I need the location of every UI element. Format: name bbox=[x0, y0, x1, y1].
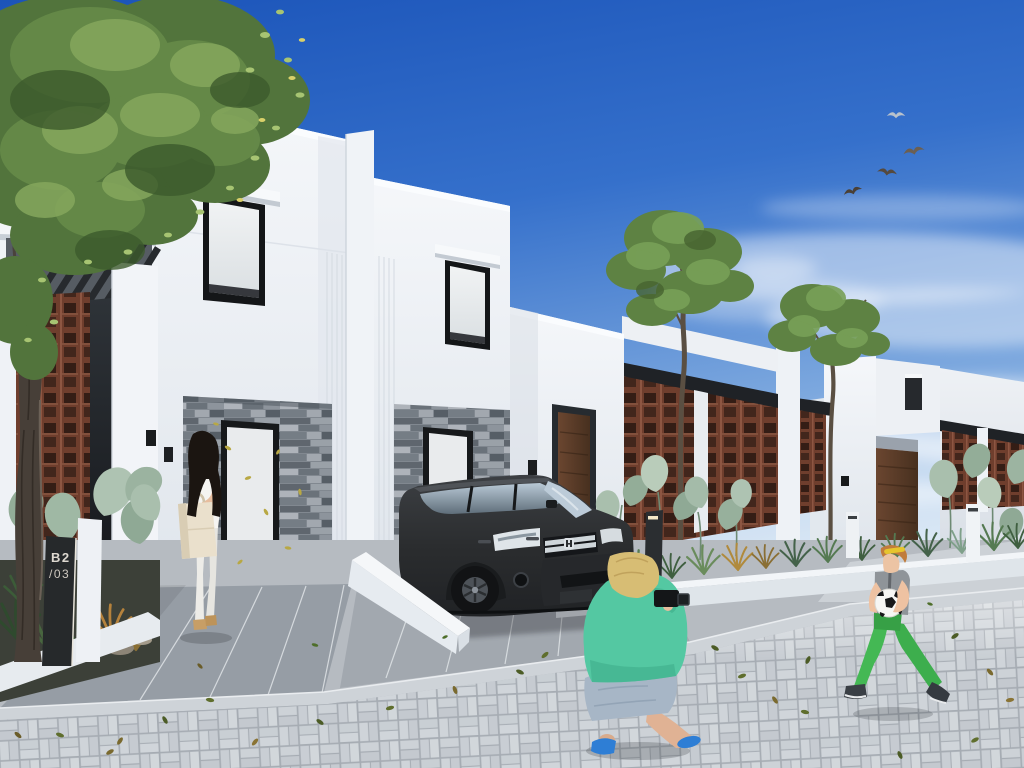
architectural-render: B2 /03 bbox=[0, 0, 1024, 768]
address-sign-line2: /03 bbox=[49, 567, 70, 581]
tower-slot-window bbox=[905, 376, 922, 410]
shopper-shadow bbox=[180, 632, 232, 644]
intercom-box bbox=[164, 447, 173, 462]
honda-emblem bbox=[564, 538, 574, 549]
sign-back-pillar bbox=[76, 518, 102, 662]
wall-lamp bbox=[146, 430, 156, 446]
bollard-light-white bbox=[966, 504, 980, 562]
pier bbox=[776, 346, 800, 568]
address-sign: B2 /03 bbox=[42, 536, 76, 666]
wedge-shoe bbox=[205, 615, 217, 626]
lattice-mullion bbox=[694, 390, 708, 533]
entry-wood-door bbox=[876, 448, 918, 546]
bollard-lamp-glow bbox=[648, 516, 658, 520]
door-handle bbox=[478, 540, 491, 543]
wall-lamp bbox=[528, 460, 537, 475]
doorbell-panel bbox=[841, 476, 849, 486]
boy-shadow bbox=[853, 707, 933, 721]
door-handle bbox=[526, 537, 539, 540]
fog-light bbox=[514, 573, 528, 587]
suv-mirror bbox=[546, 500, 557, 508]
lattice-screen bbox=[798, 410, 826, 514]
blue-flat-shoe bbox=[591, 738, 616, 754]
render-canvas: B2 /03 bbox=[0, 0, 1024, 768]
wedge-shoe bbox=[193, 619, 207, 630]
upper-window-glass bbox=[450, 266, 485, 344]
camera-lens bbox=[678, 594, 689, 605]
upper-window-glass bbox=[209, 201, 259, 298]
address-sign-line1: B2 bbox=[51, 550, 71, 565]
camera bbox=[654, 590, 679, 607]
